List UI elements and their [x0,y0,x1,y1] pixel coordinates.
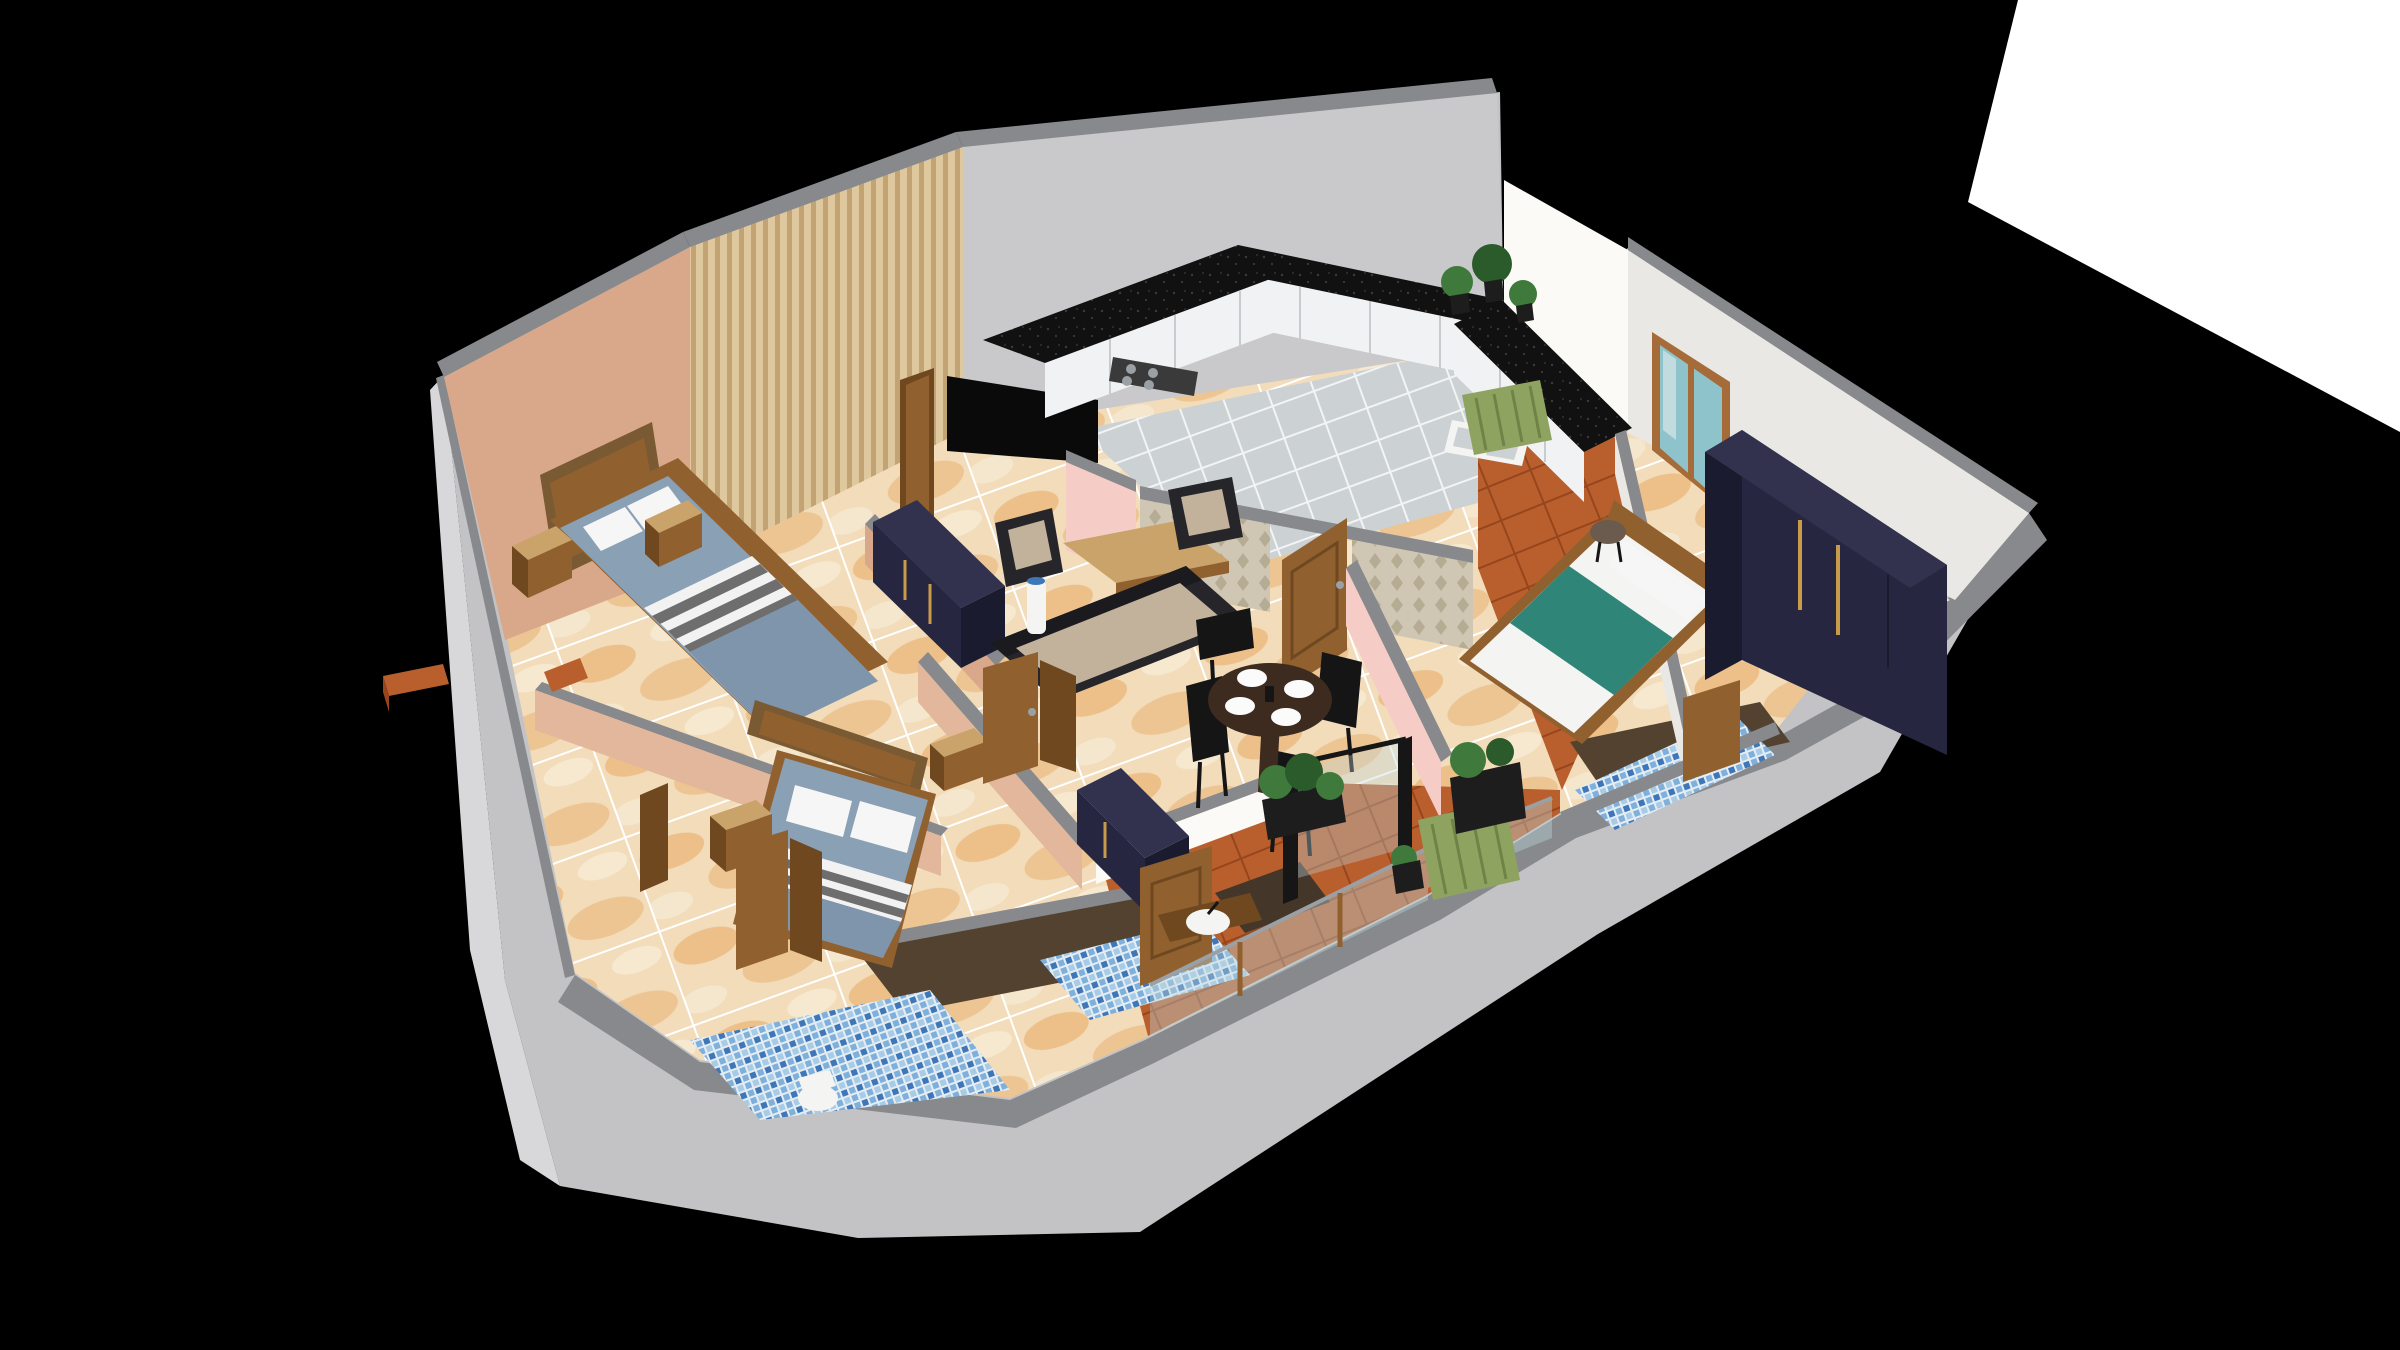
glass-partition-frame [1398,736,1412,858]
table-centerpiece [1265,686,1274,702]
stool-top [1590,520,1626,544]
planter-pot [1450,293,1470,315]
window-reflection [1663,350,1676,440]
plant-foliage [1472,244,1512,284]
door-handle [1028,708,1036,716]
armchair-cushion [1181,489,1230,536]
burner [1122,376,1132,386]
bedroom-2-door [983,652,1076,784]
plate [1271,708,1301,726]
plant-foliage [1509,280,1537,308]
door-leaf [983,652,1038,784]
door-leaf [790,838,822,962]
vase-body [1027,580,1046,634]
bathroom-1-doors [736,830,822,970]
armchair [1168,477,1243,550]
plant-foliage [1316,772,1344,800]
plate [1225,697,1255,715]
floorplan-render [0,0,2400,1350]
burner [1126,364,1136,374]
vase-top [1027,577,1045,585]
planter-box [1392,860,1424,894]
window-mullion [1688,363,1694,482]
render-canvas [0,0,2400,1350]
plate [1237,669,1267,687]
plant-foliage [1486,738,1514,766]
burner [1144,380,1154,390]
plate [1284,680,1314,698]
window-frame-west [640,783,668,892]
planter-pot [1516,303,1534,323]
door-handle [1336,581,1344,589]
plant-foliage [1450,742,1486,778]
planter-pot [1484,279,1504,303]
plant-foliage [1441,266,1473,298]
burner [1148,368,1158,378]
chair-leg [1198,762,1200,808]
floor-vase [1027,577,1046,634]
door-leaf [1040,660,1076,772]
door-leaf [736,830,788,970]
